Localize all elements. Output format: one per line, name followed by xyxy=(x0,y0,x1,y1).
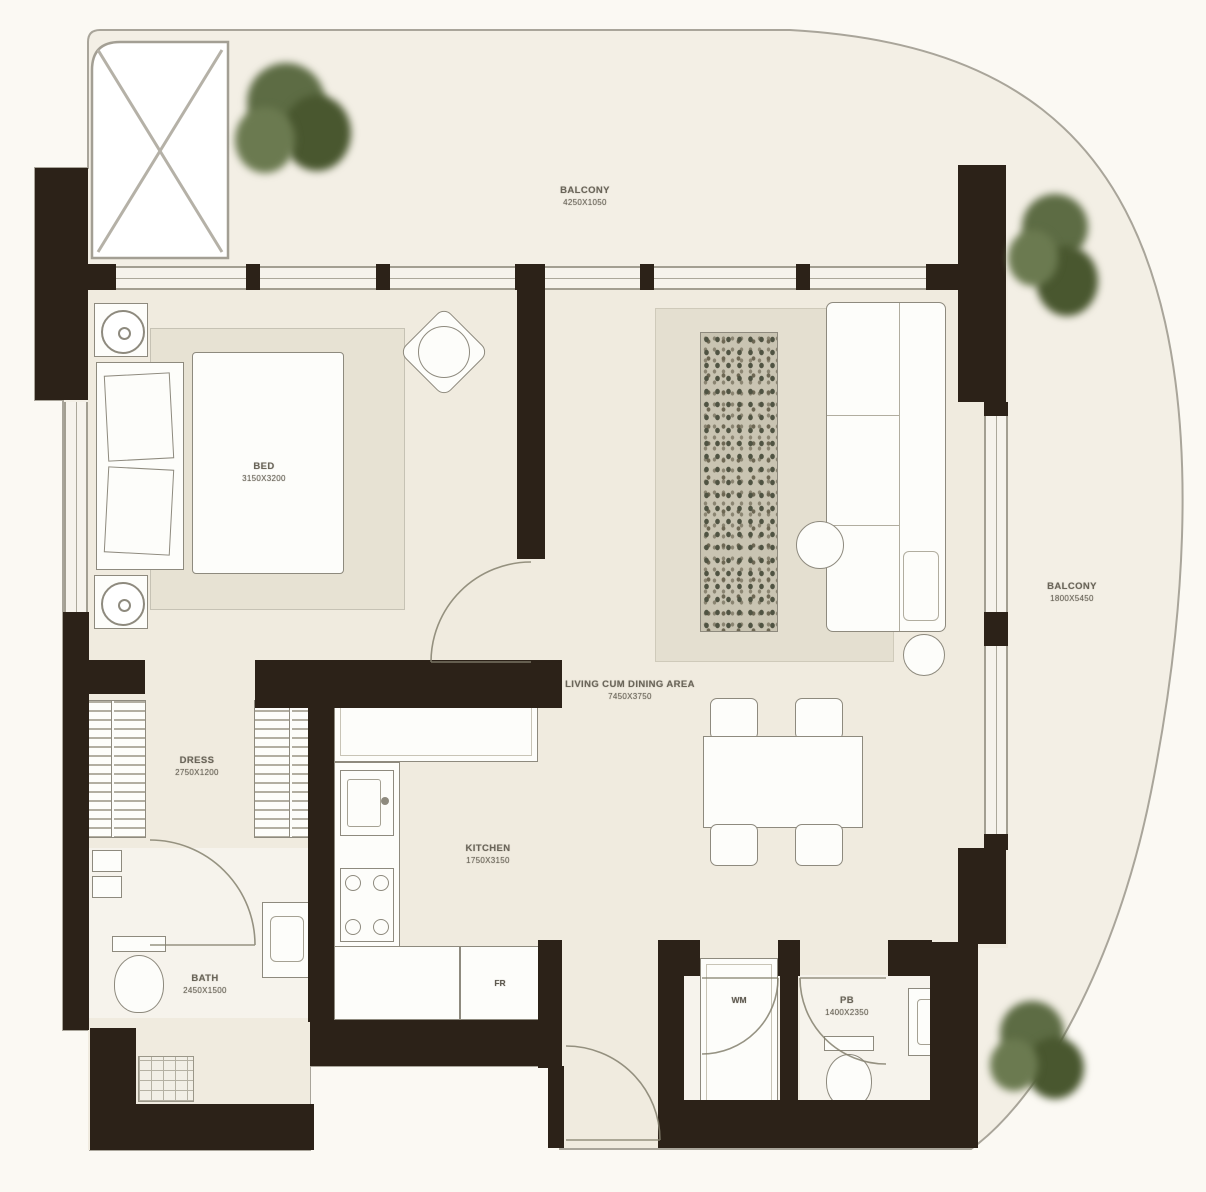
plant xyxy=(235,55,360,190)
toilet-bowl xyxy=(114,955,164,1013)
window-mullion xyxy=(640,264,654,290)
wall xyxy=(517,280,545,559)
table-lamp xyxy=(101,582,145,626)
dining-chair xyxy=(710,824,758,866)
wall xyxy=(63,660,145,694)
bath-shelf xyxy=(92,876,122,898)
decor-console xyxy=(700,332,778,632)
room-label-balcony-top: BALCONY 4250X1050 xyxy=(560,185,610,207)
window-mullion xyxy=(984,834,1008,850)
wall xyxy=(255,660,562,708)
window-mullion xyxy=(88,264,116,290)
service-shaft xyxy=(92,42,228,258)
round-stool xyxy=(903,634,945,676)
wall xyxy=(958,165,1006,402)
window-mullion xyxy=(796,264,810,290)
room-label-powder: PB 1400X2350 xyxy=(825,995,869,1017)
accent-chair-seat xyxy=(418,326,470,378)
window-mullion xyxy=(515,264,545,290)
kitchen-counter-top xyxy=(334,700,538,762)
wall xyxy=(684,940,700,976)
wall xyxy=(930,942,978,1148)
wall xyxy=(548,1066,564,1148)
dining-chair xyxy=(710,698,758,740)
pillow xyxy=(104,372,174,461)
wall xyxy=(35,168,88,400)
kitchen-sink xyxy=(340,770,394,836)
entry-mat xyxy=(138,1056,194,1102)
window-mullion xyxy=(984,612,1008,646)
window-mullion xyxy=(926,264,960,290)
stove xyxy=(340,868,394,942)
plant xyxy=(1008,190,1113,335)
wall xyxy=(90,1028,136,1150)
pb-toilet-tank xyxy=(824,1036,874,1051)
window-mullion xyxy=(246,264,260,290)
wall xyxy=(308,694,334,1022)
window-mullion xyxy=(376,264,390,290)
kitchen-counter-bottom xyxy=(334,946,460,1020)
dining-table xyxy=(703,736,863,828)
bedroom-window-band xyxy=(64,402,88,612)
fridge-label: FR xyxy=(494,978,505,988)
washer-closet xyxy=(700,958,778,1122)
wall xyxy=(310,1020,562,1066)
room-label-dress: DRESS 2750X1200 xyxy=(175,755,219,777)
room-label-living: LIVING CUM DINING AREA 7450X3750 xyxy=(565,679,695,701)
wall xyxy=(134,1104,314,1150)
room-label-bedroom: BED 3150X3200 xyxy=(242,461,286,483)
side-table xyxy=(796,521,844,569)
wall xyxy=(780,942,798,1148)
table-lamp xyxy=(101,310,145,354)
washer-label: WM xyxy=(731,995,746,1005)
room-label-kitchen: KITCHEN 1750X3150 xyxy=(465,843,510,865)
toilet-tank xyxy=(112,936,166,952)
room-label-balcony-right: BALCONY 1800X5450 xyxy=(1047,581,1097,603)
wall xyxy=(888,940,932,976)
wall xyxy=(958,848,1006,944)
dining-chair xyxy=(795,824,843,866)
plant xyxy=(990,995,1095,1115)
bath-shelf xyxy=(92,850,122,872)
window-mullion xyxy=(984,402,1008,416)
sofa xyxy=(826,302,946,632)
room-label-bath: BATH 2450X1500 xyxy=(183,973,227,995)
pillow xyxy=(104,466,174,555)
wall xyxy=(538,940,562,1068)
wall xyxy=(63,695,89,1030)
bath-vanity xyxy=(262,902,312,978)
floor-plan: BALCONY 4250X1050 BED 3150X3200 LIVING C… xyxy=(0,0,1206,1192)
wall xyxy=(658,940,684,1148)
dining-chair xyxy=(795,698,843,740)
